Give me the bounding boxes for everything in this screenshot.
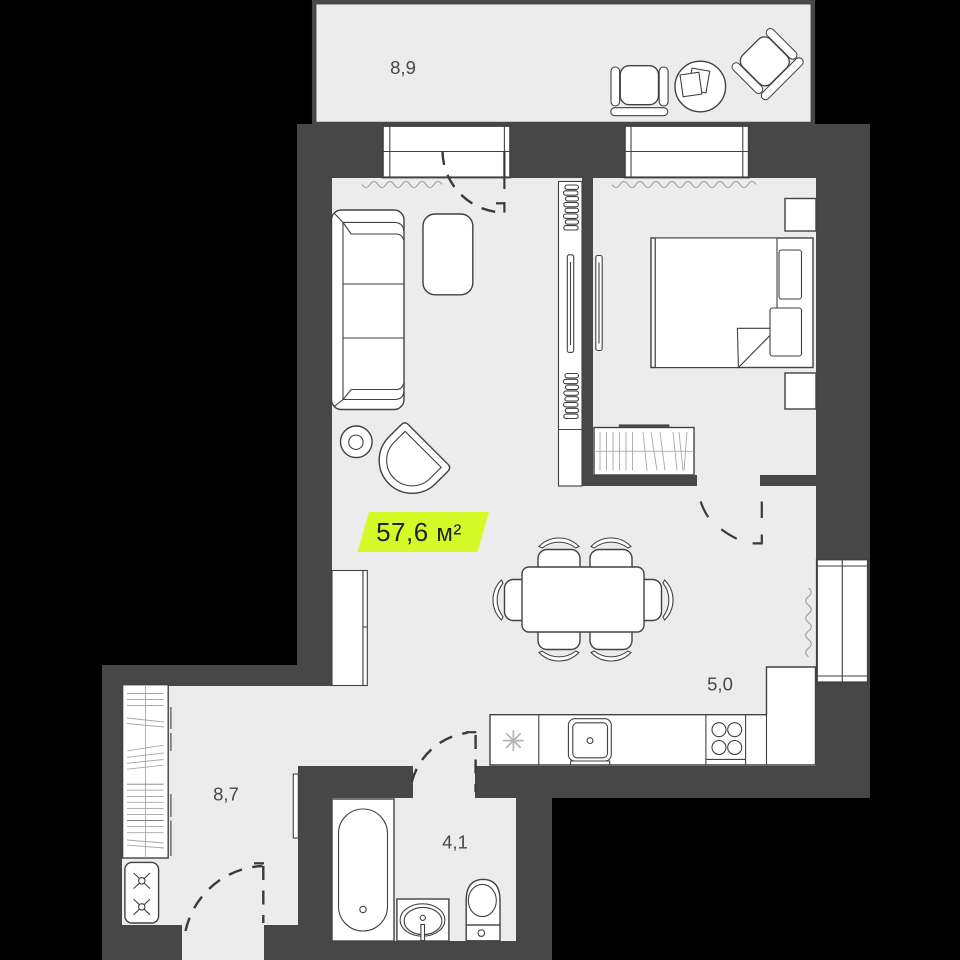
svg-text:5,0: 5,0 (707, 674, 733, 695)
svg-text:4,1: 4,1 (442, 832, 468, 853)
svg-text:8,9: 8,9 (390, 57, 416, 78)
svg-text:8,7: 8,7 (213, 784, 239, 805)
svg-text:57,6 м²: 57,6 м² (376, 517, 462, 547)
